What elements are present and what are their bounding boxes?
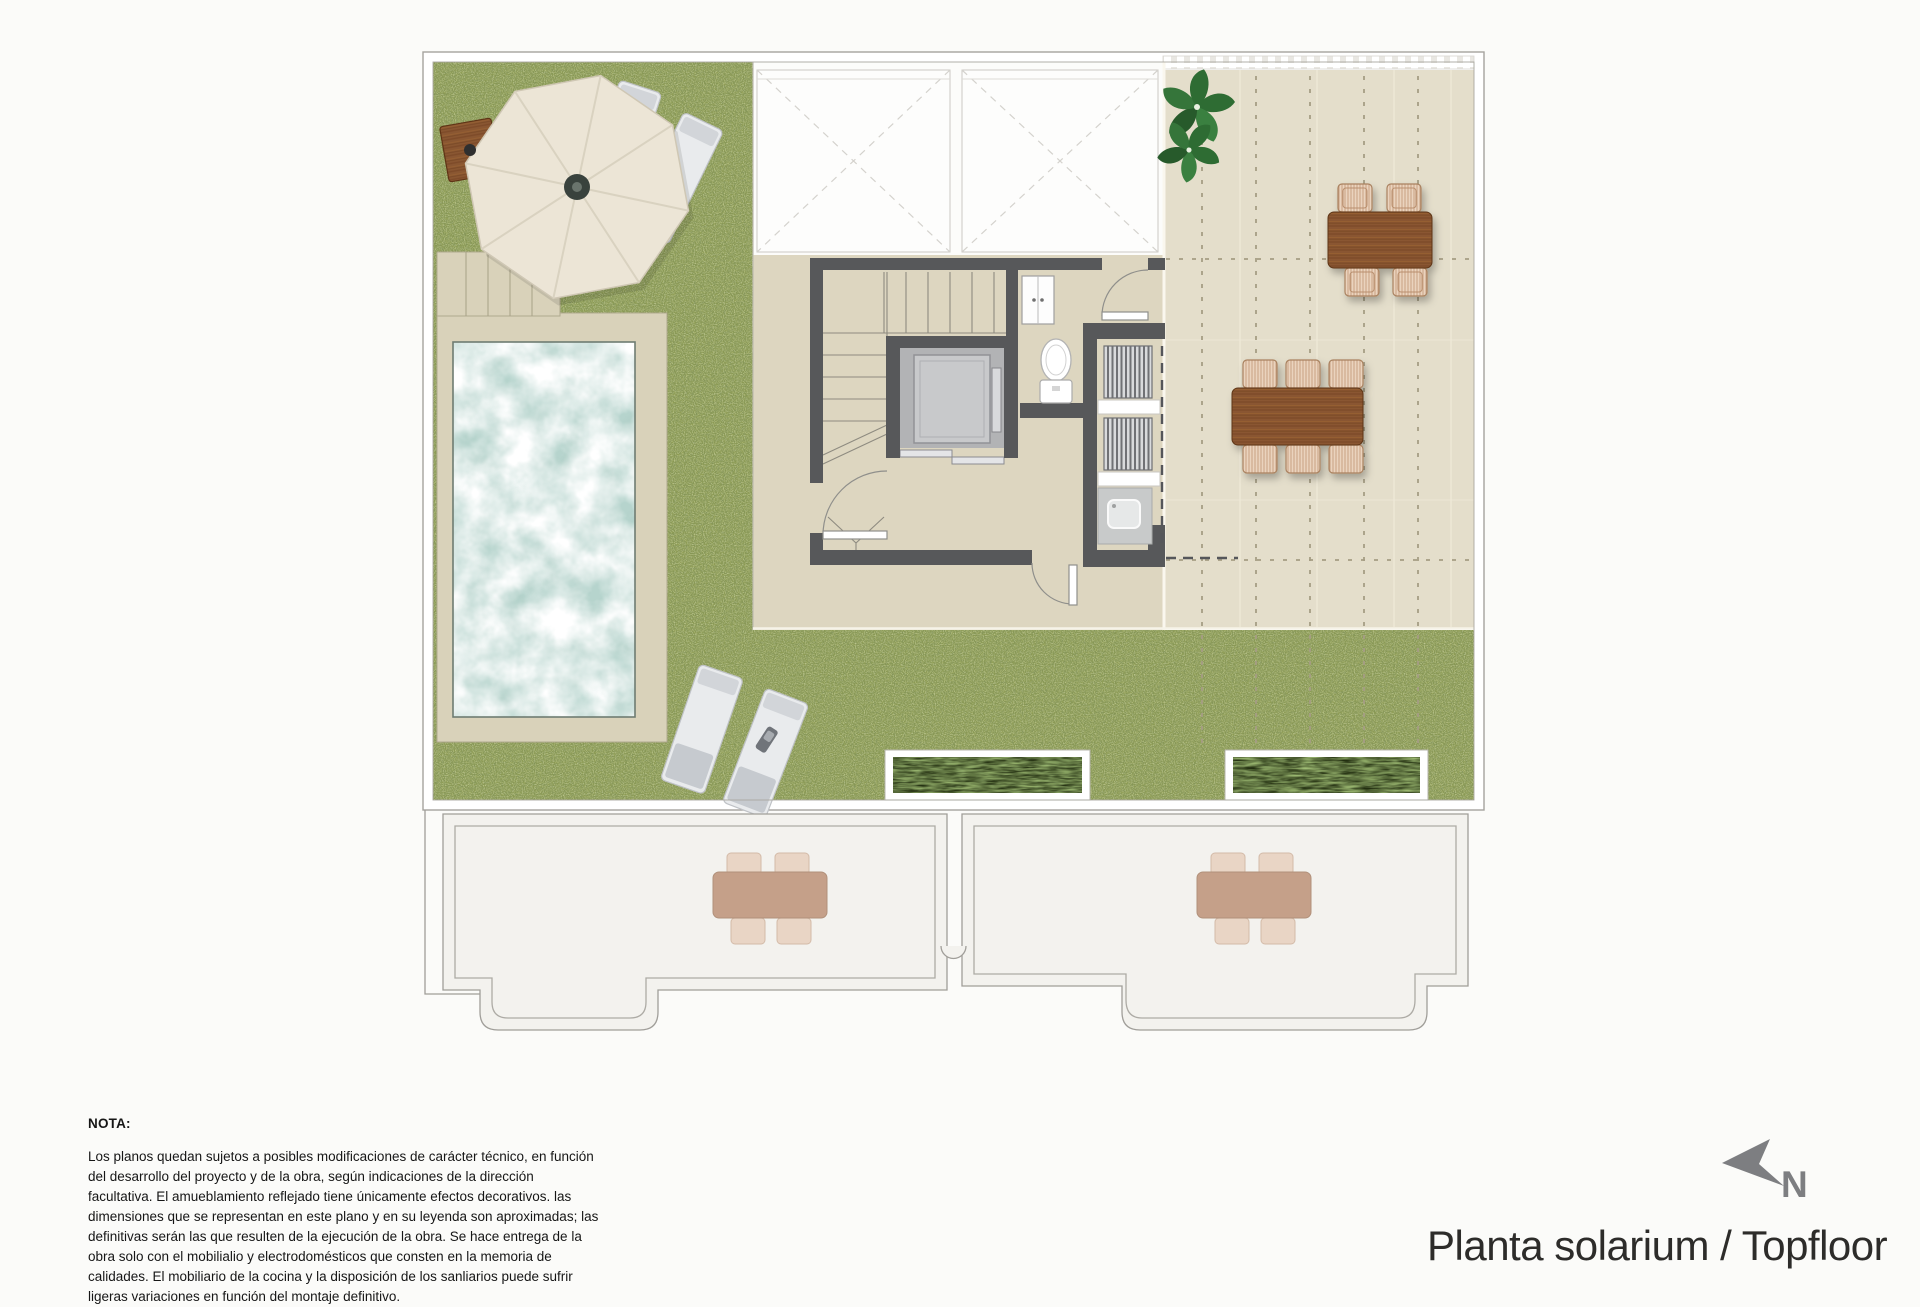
terrace-edge-ticks [1163, 56, 1474, 69]
laundry-sink [1098, 488, 1152, 544]
north-label: N [1781, 1164, 1808, 1206]
north-arrow-icon [1722, 1139, 1784, 1186]
terrace [1163, 56, 1474, 630]
elevator-door [900, 450, 952, 457]
door-leaf [1102, 312, 1148, 320]
floorplan-drawing [0, 0, 1920, 1280]
lower-terrace-left [443, 814, 947, 1030]
umbrella-base-bolt [464, 144, 476, 156]
utility-shelf [1098, 472, 1160, 486]
utility-shelf [1098, 400, 1160, 414]
planter-box-right [1225, 750, 1428, 800]
elevator-door [952, 457, 1004, 464]
skylight-voids [753, 62, 1163, 258]
note-heading: NOTA: [88, 1116, 600, 1131]
swimming-pool [453, 342, 635, 717]
toilet [1040, 339, 1072, 403]
wc-cabinet [1022, 276, 1054, 324]
plan-note: NOTA: Los planos quedan sujetos a posibl… [88, 1116, 600, 1307]
note-body: Los planos quedan sujetos a posibles mod… [88, 1147, 600, 1307]
laundry-appliance-lower [1104, 418, 1152, 470]
door-leaf [823, 531, 887, 539]
page-title: Planta solarium / Topfloor [1427, 1222, 1897, 1270]
lower-roof-terraces [425, 810, 1468, 1030]
elevator [900, 348, 1004, 464]
dining-table-4-seats [1328, 212, 1432, 268]
laundry-appliance-upper [1104, 346, 1152, 398]
floorplan-page: NOTA: Los planos quedan sujetos a posibl… [0, 0, 1920, 1280]
dining-set-6-seats [1232, 360, 1363, 473]
planter-box-left [885, 750, 1090, 800]
elevator-counterweight [992, 368, 1001, 432]
door-leaf [1069, 565, 1077, 605]
dining-table-6-seats [1232, 388, 1363, 445]
